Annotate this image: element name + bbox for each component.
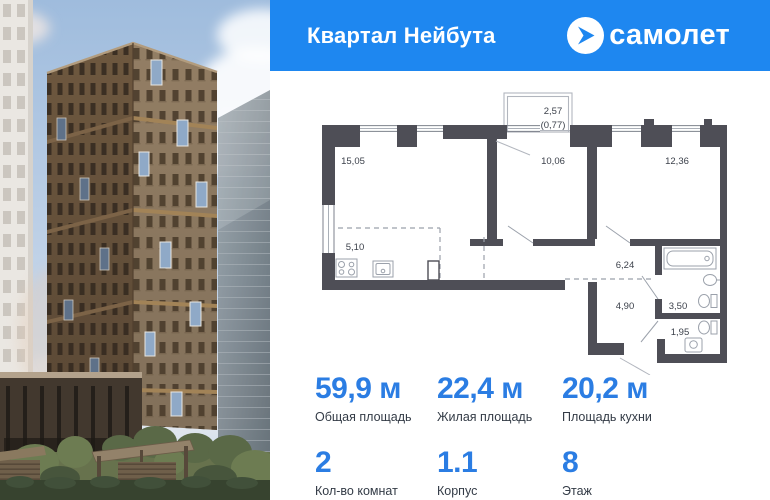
room-label-bedroom-1: 10,06 (541, 156, 565, 167)
building-photo (0, 0, 270, 500)
stat-value: 8 (562, 448, 712, 478)
main-tower (47, 43, 217, 430)
project-title: Квартал Нейбута (307, 23, 496, 49)
room-label-corridor: 6,24 (616, 260, 635, 271)
stat-label: Площадь кухни (562, 410, 712, 424)
stat-kitchen-area: 20,2 м Площадь кухни (562, 374, 712, 424)
stove-icon (336, 259, 357, 277)
room-label-kitchen: 5,10 (346, 242, 365, 253)
stat-label: Этаж (562, 484, 712, 498)
glass-building (218, 90, 270, 470)
duct-column (428, 261, 439, 280)
balcony-reduced-label: (0,77) (541, 120, 566, 131)
stat-value: 20,2 м (562, 374, 712, 404)
room-label-bedroom-2: 12,36 (665, 156, 689, 167)
samolet-logo-icon (567, 17, 604, 54)
room-label-hallway: 4,90 (616, 301, 635, 312)
balcony-area-label: 2,57 (544, 106, 563, 117)
door-swings (496, 141, 658, 375)
floor-plan: 15,05 10,06 12,36 5,10 6,24 4,90 3,50 1,… (300, 75, 760, 375)
brand-logo: самолет (567, 0, 730, 71)
kitchen-sink-icon (373, 261, 393, 277)
wc-toilet-icon (699, 321, 718, 334)
room-label-wc: 1,95 (671, 327, 690, 338)
stat-floor: 8 Этаж (562, 448, 712, 498)
bathtub-icon (664, 248, 716, 269)
room-label-living: 15,05 (341, 156, 365, 167)
wc-sink-icon (685, 338, 702, 352)
info-panel: Квартал Нейбута самолет (270, 0, 770, 500)
listing-card[interactable]: Квартал Нейбута самолет (0, 0, 770, 500)
room-label-bathroom: 3,50 (669, 301, 688, 312)
fixtures (336, 248, 720, 352)
room-labels: 15,05 10,06 12,36 5,10 6,24 4,90 3,50 1,… (341, 106, 689, 338)
brand-name: самолет (609, 19, 730, 52)
header: Квартал Нейбута самолет (270, 0, 770, 71)
bathroom-toilet-icon (699, 295, 718, 308)
bathroom-sink-icon (704, 275, 721, 286)
